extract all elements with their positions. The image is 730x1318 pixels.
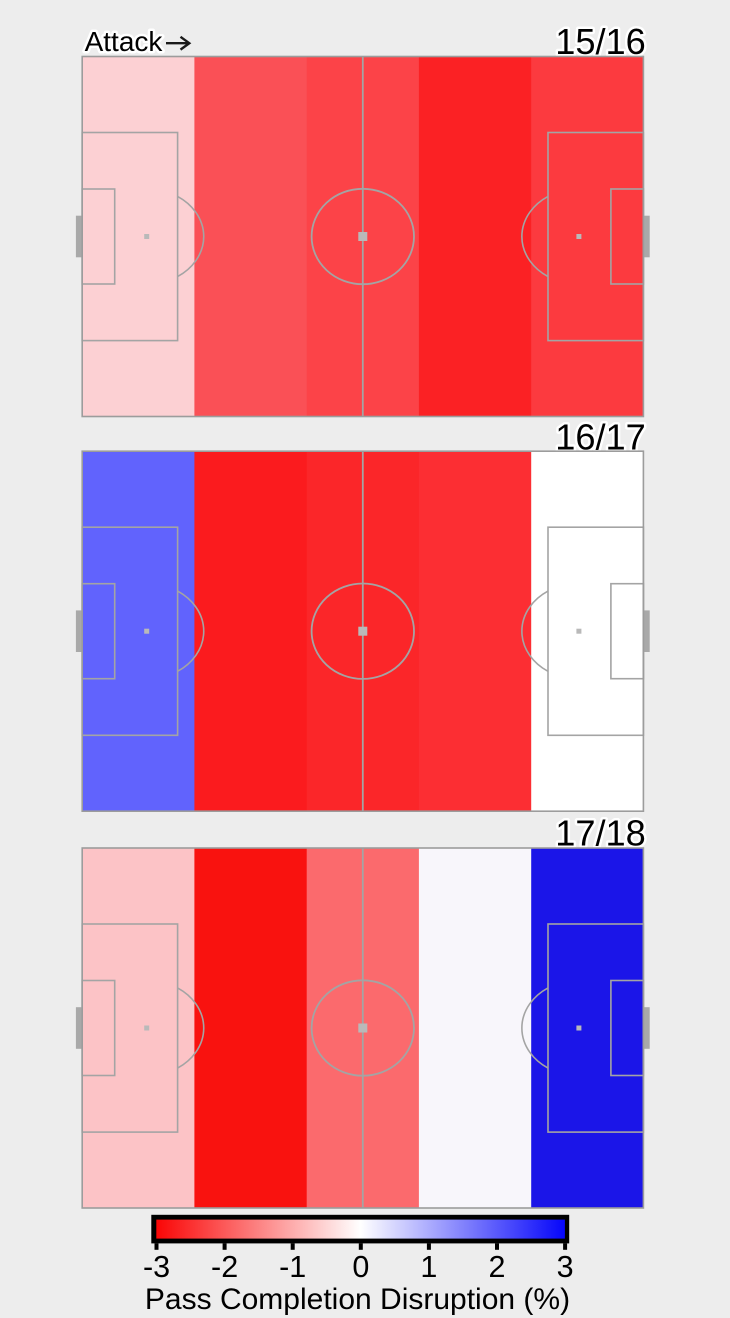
- svg-text:2: 2: [489, 1250, 506, 1284]
- svg-text:1: 1: [420, 1250, 437, 1284]
- svg-text:-3: -3: [143, 1250, 170, 1284]
- svg-text:15/16: 15/16: [555, 21, 646, 62]
- svg-text:Pass Completion Disruption (%): Pass Completion Disruption (%): [145, 1283, 570, 1316]
- svg-text:-1: -1: [279, 1250, 306, 1284]
- svg-text:0: 0: [352, 1250, 369, 1284]
- svg-text:-2: -2: [211, 1250, 238, 1284]
- svg-text:3: 3: [557, 1250, 574, 1284]
- svg-text:17/18: 17/18: [555, 812, 646, 853]
- svg-text:Attack: Attack: [85, 26, 164, 57]
